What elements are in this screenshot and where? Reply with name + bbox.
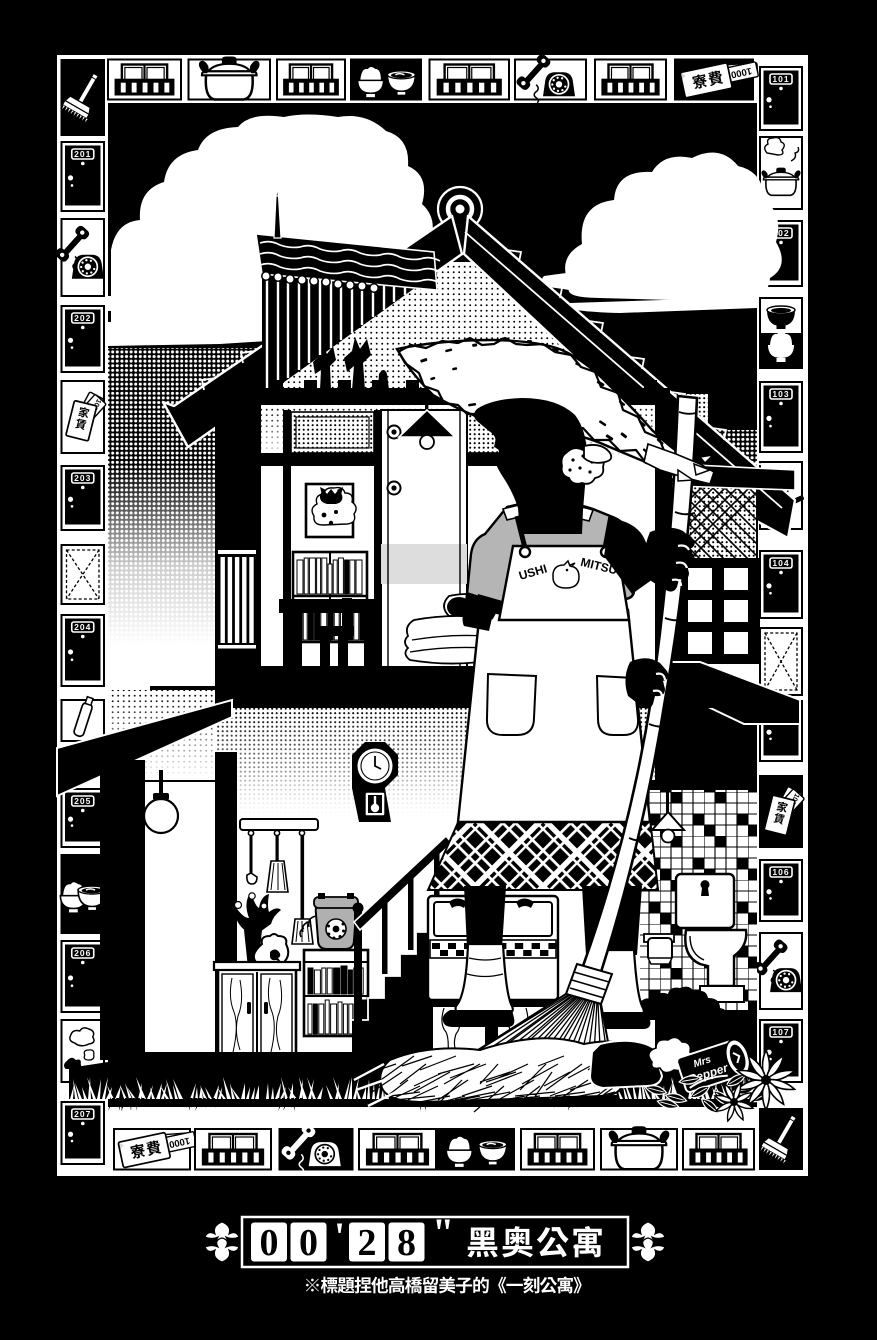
svg-text:205: 205	[74, 796, 91, 806]
svg-text:2: 2	[358, 1222, 377, 1264]
svg-text:201: 201	[74, 149, 91, 159]
svg-text:103: 103	[772, 389, 789, 399]
svg-text:202: 202	[74, 313, 91, 323]
svg-text:206: 206	[74, 948, 91, 958]
svg-text:': '	[334, 1214, 345, 1259]
svg-text:0: 0	[299, 1222, 318, 1264]
svg-text:104: 104	[772, 558, 789, 568]
svg-text:107: 107	[772, 1027, 789, 1037]
svg-text:106: 106	[772, 867, 789, 877]
svg-text:0: 0	[260, 1222, 279, 1264]
svg-text:": "	[432, 1210, 454, 1255]
svg-text:204: 204	[74, 622, 91, 632]
svg-text:207: 207	[74, 1109, 91, 1119]
svg-text:8: 8	[397, 1222, 416, 1264]
svg-text:203: 203	[74, 473, 91, 483]
svg-text:101: 101	[772, 74, 789, 84]
